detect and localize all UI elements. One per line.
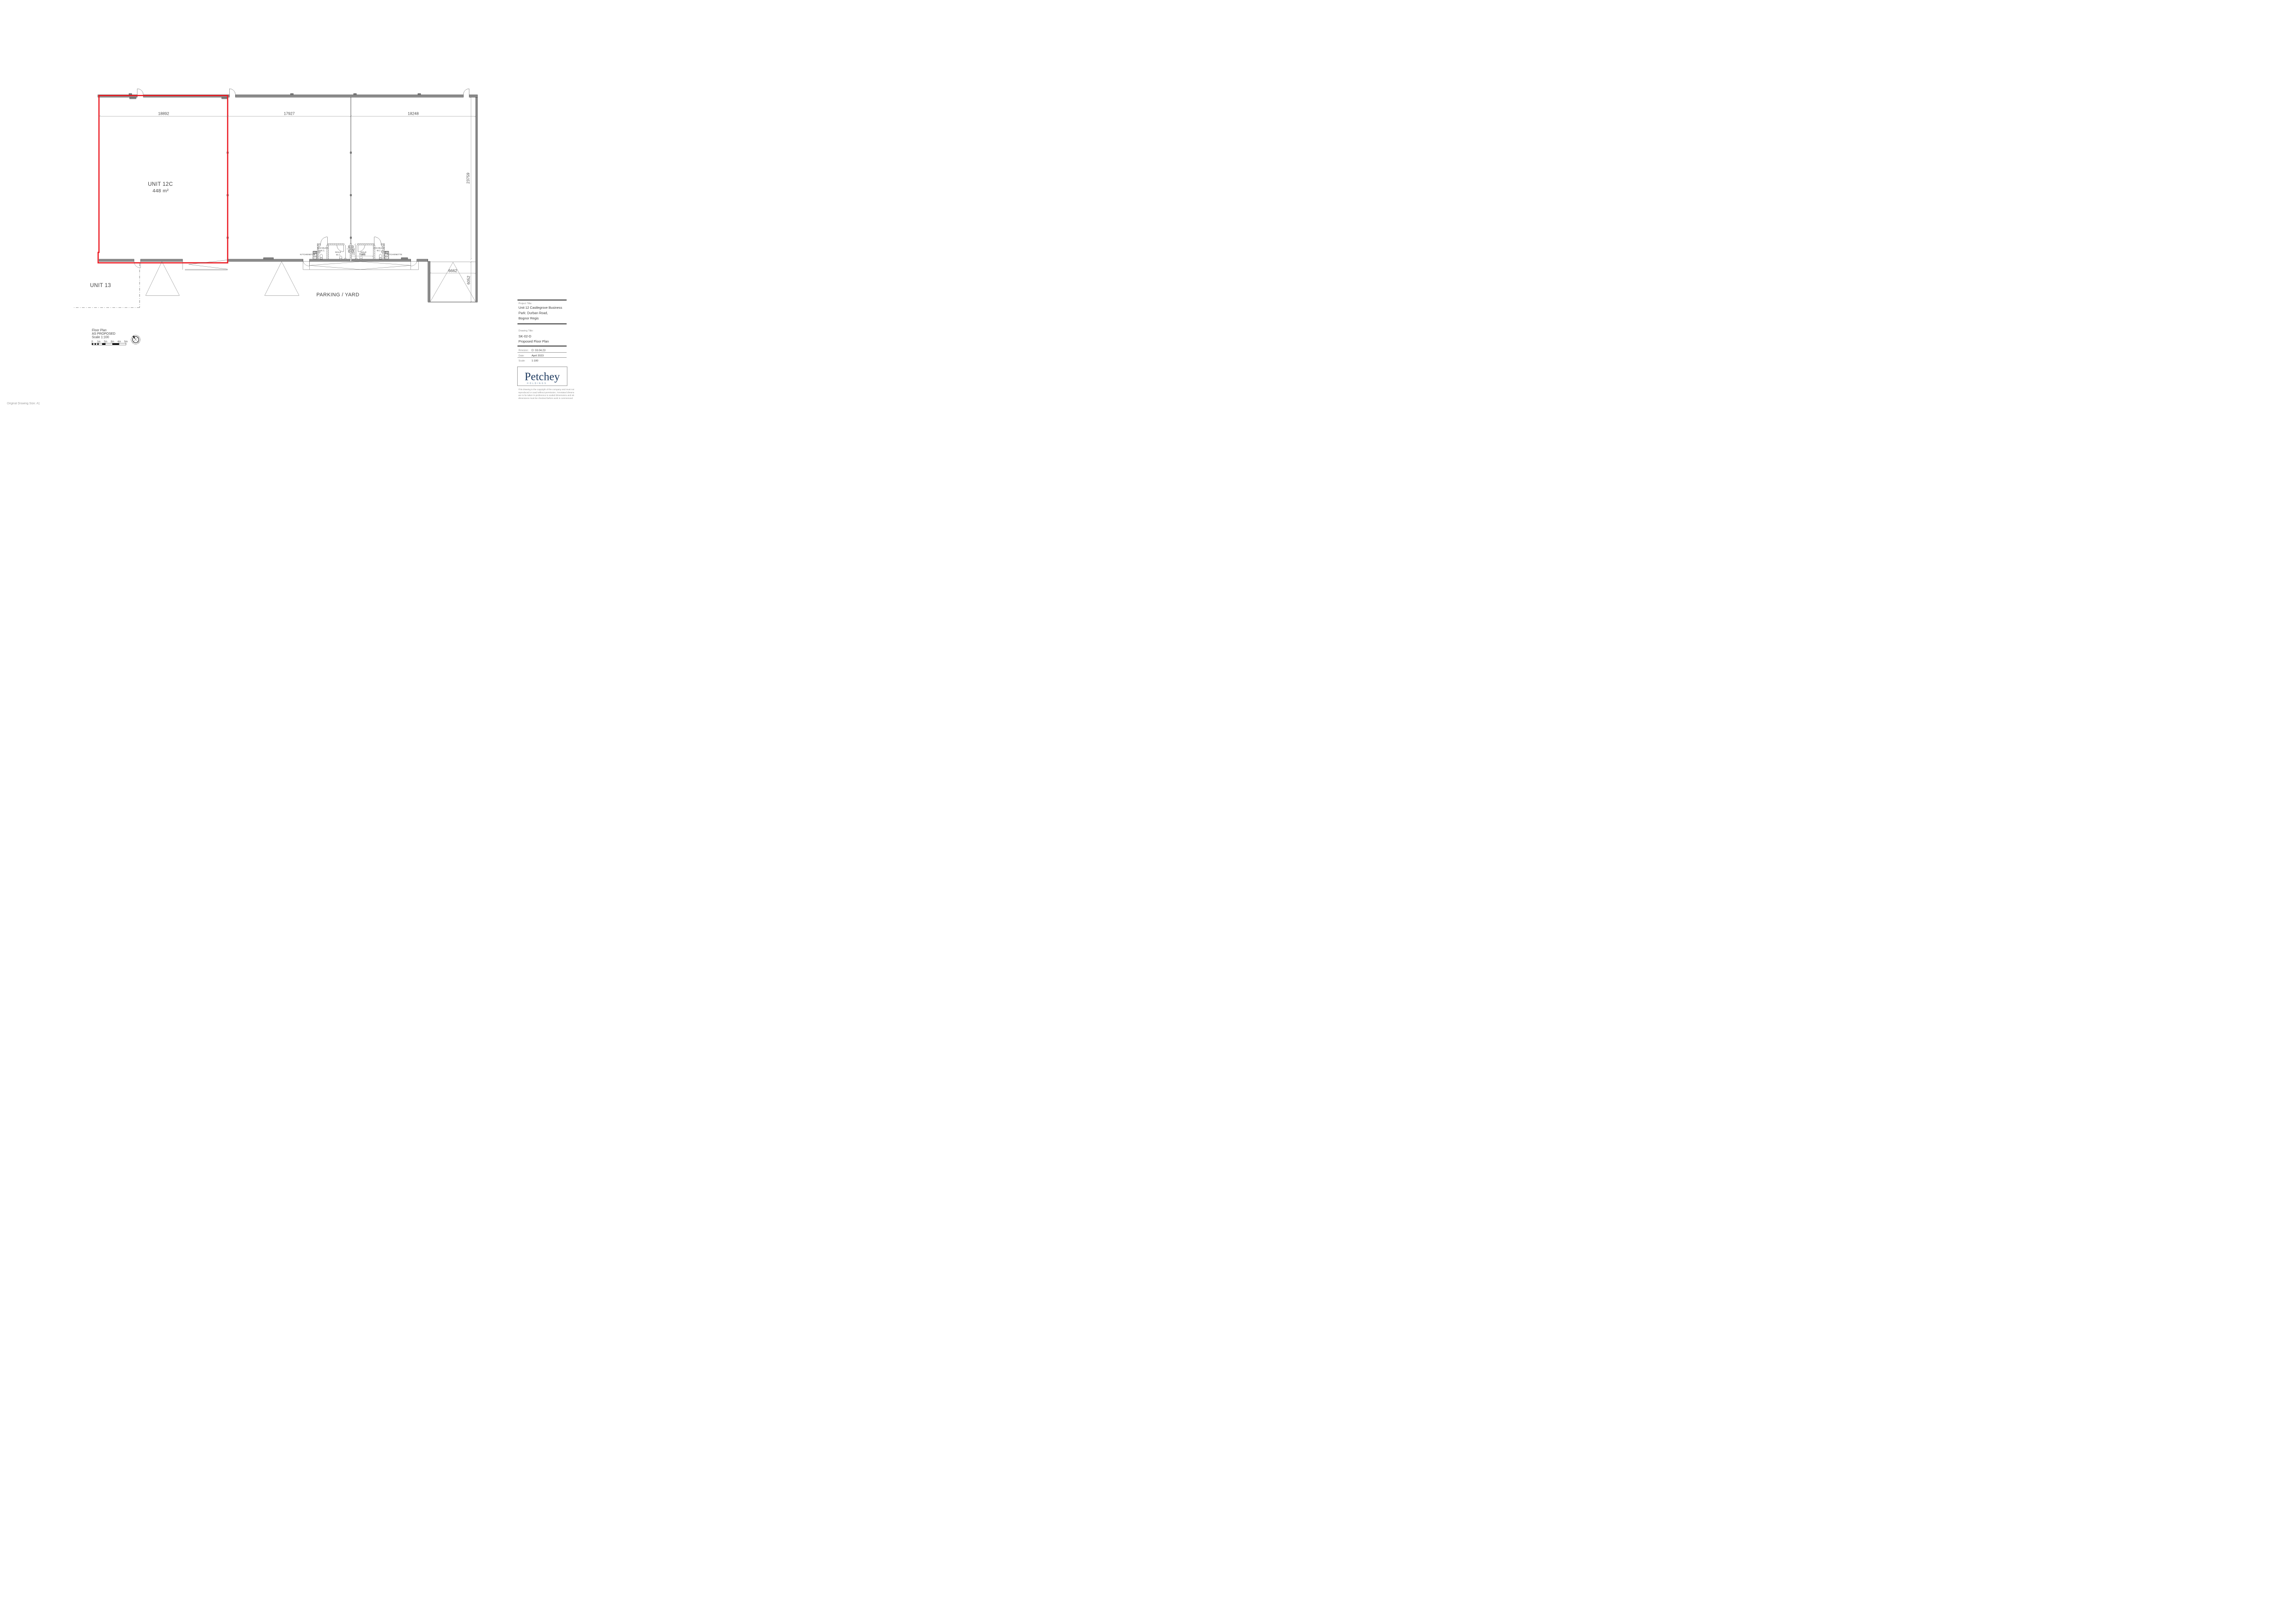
- column-marker: [350, 152, 352, 154]
- disclaimer-line4: dimensions must be checked before work i…: [518, 397, 573, 399]
- male-wc-left-label2: W.C: [336, 254, 340, 256]
- yard-doors: [134, 260, 478, 302]
- joint-tick: [418, 93, 421, 95]
- drawing-title-label: Drawing Title:: [519, 330, 533, 332]
- unit12c-label: UNIT 12C: [148, 182, 173, 187]
- project-title-label: Project Title:: [519, 302, 532, 305]
- joint-tick: [291, 93, 294, 95]
- drawing-code: SK-02-D: [519, 334, 532, 338]
- pilaster: [130, 97, 136, 99]
- company-logo: Petchey HOLDINGS: [517, 367, 567, 386]
- title-block: Project Title: Unit 12 Castlegrove Busin…: [517, 300, 574, 399]
- unit12c-area: 448 m²: [153, 188, 169, 194]
- dim-bay-depth: 6052: [466, 275, 471, 284]
- pilaster: [401, 257, 408, 259]
- bottom-wall-seg1: [99, 259, 135, 262]
- dim-top-left: 18892: [158, 111, 169, 116]
- disabled-wc-right-label: DISABLED: [373, 247, 384, 249]
- column-marker: [350, 237, 352, 239]
- revision-label: Revision:: [519, 349, 529, 352]
- sheet-size-note: Original Drawing Size: A1: [7, 402, 40, 405]
- male-wc-left-label: MALE: [335, 251, 341, 253]
- project-title-line2: Park: Durban Road,: [519, 311, 548, 315]
- divider-bar: [518, 324, 567, 324]
- legend-scale: Scale 1:100: [92, 336, 109, 339]
- legend-subtitle: AS PROPOSED: [92, 332, 116, 336]
- disabled-wc-left-label: DISABLED: [318, 247, 328, 249]
- drawing-title: Proposed Floor Plan: [519, 339, 549, 343]
- unit13-label: UNIT 13: [90, 283, 111, 288]
- top-wall-seg4: [469, 95, 478, 97]
- joint-tick: [129, 93, 132, 95]
- disabled-wc-right-label2: W.C.: [377, 250, 381, 252]
- divider-bar: [518, 300, 567, 300]
- internal-partitions: [227, 97, 352, 259]
- disclaimer-line2: reproduced or used without permission. A…: [518, 391, 574, 393]
- logo-text: Petchey: [525, 371, 560, 383]
- legend-block: Floor Plan AS PROPOSED Scale 1:100 0 1m …: [92, 329, 140, 345]
- parking-yard-label: PARKING / YARD: [316, 292, 359, 298]
- project-title-line1: Unit 12 Castlegrove Business: [519, 306, 563, 310]
- kitchenette-left-label: KITCHENETTE: [300, 253, 315, 256]
- north-arrow-icon: [131, 335, 141, 344]
- dim-bay-width: 6662: [448, 269, 457, 273]
- dimensions: [98, 96, 477, 303]
- disabled-wc-left-label2: W.C.: [320, 250, 325, 252]
- kitchenette-right-label: KITCHENETTE: [387, 253, 402, 256]
- dim-top-right: 18248: [408, 111, 419, 116]
- bottom-wall-seg3: [228, 259, 303, 262]
- unit12c-red-outline: [98, 96, 227, 263]
- building-walls: [98, 93, 478, 302]
- pilaster: [263, 257, 274, 259]
- project-title-line3: Bognor Regis: [519, 316, 539, 320]
- date-label: Date:: [519, 355, 525, 357]
- date-value: April 2023: [532, 355, 544, 357]
- bottom-wall-seg4: [310, 259, 411, 262]
- column-marker: [350, 195, 352, 196]
- dim-top-mid: 17927: [284, 111, 295, 116]
- divider-bar: [518, 346, 567, 347]
- scale-label: Scale:: [519, 360, 526, 362]
- disclaimer-line3: are to be taken in preference to scaled …: [518, 394, 574, 397]
- male-wc-right-label2: W.C: [361, 254, 366, 256]
- bottom-wall-seg2: [141, 259, 183, 262]
- logo-subtext: HOLDINGS: [527, 382, 547, 385]
- dim-right-height: 23759: [466, 172, 471, 184]
- male-wc-right-label: MALE: [361, 251, 367, 253]
- scale-value: 1:100: [532, 360, 539, 362]
- disclaimer-line1: This drawing is the copyright of the com…: [518, 388, 574, 391]
- joint-tick: [354, 93, 356, 95]
- floor-plan-svg: 18892 17927 18248 23759 6662 6052 2200 3…: [0, 0, 574, 406]
- right-wall: [476, 97, 478, 302]
- drawing-sheet: 18892 17927 18248 23759 6662 6052 2200 3…: [0, 0, 574, 406]
- scale-bar: 0 1m 2m 3m 4m 5m: [92, 341, 128, 345]
- scale-tick-0: 0: [92, 341, 93, 343]
- bottom-wall-seg5: [417, 259, 428, 262]
- top-wall-seg3: [235, 95, 463, 97]
- bay-side-wall: [428, 262, 430, 302]
- revision-value: D: 03.04.23: [532, 349, 545, 352]
- legend-title: Floor Plan: [92, 329, 107, 332]
